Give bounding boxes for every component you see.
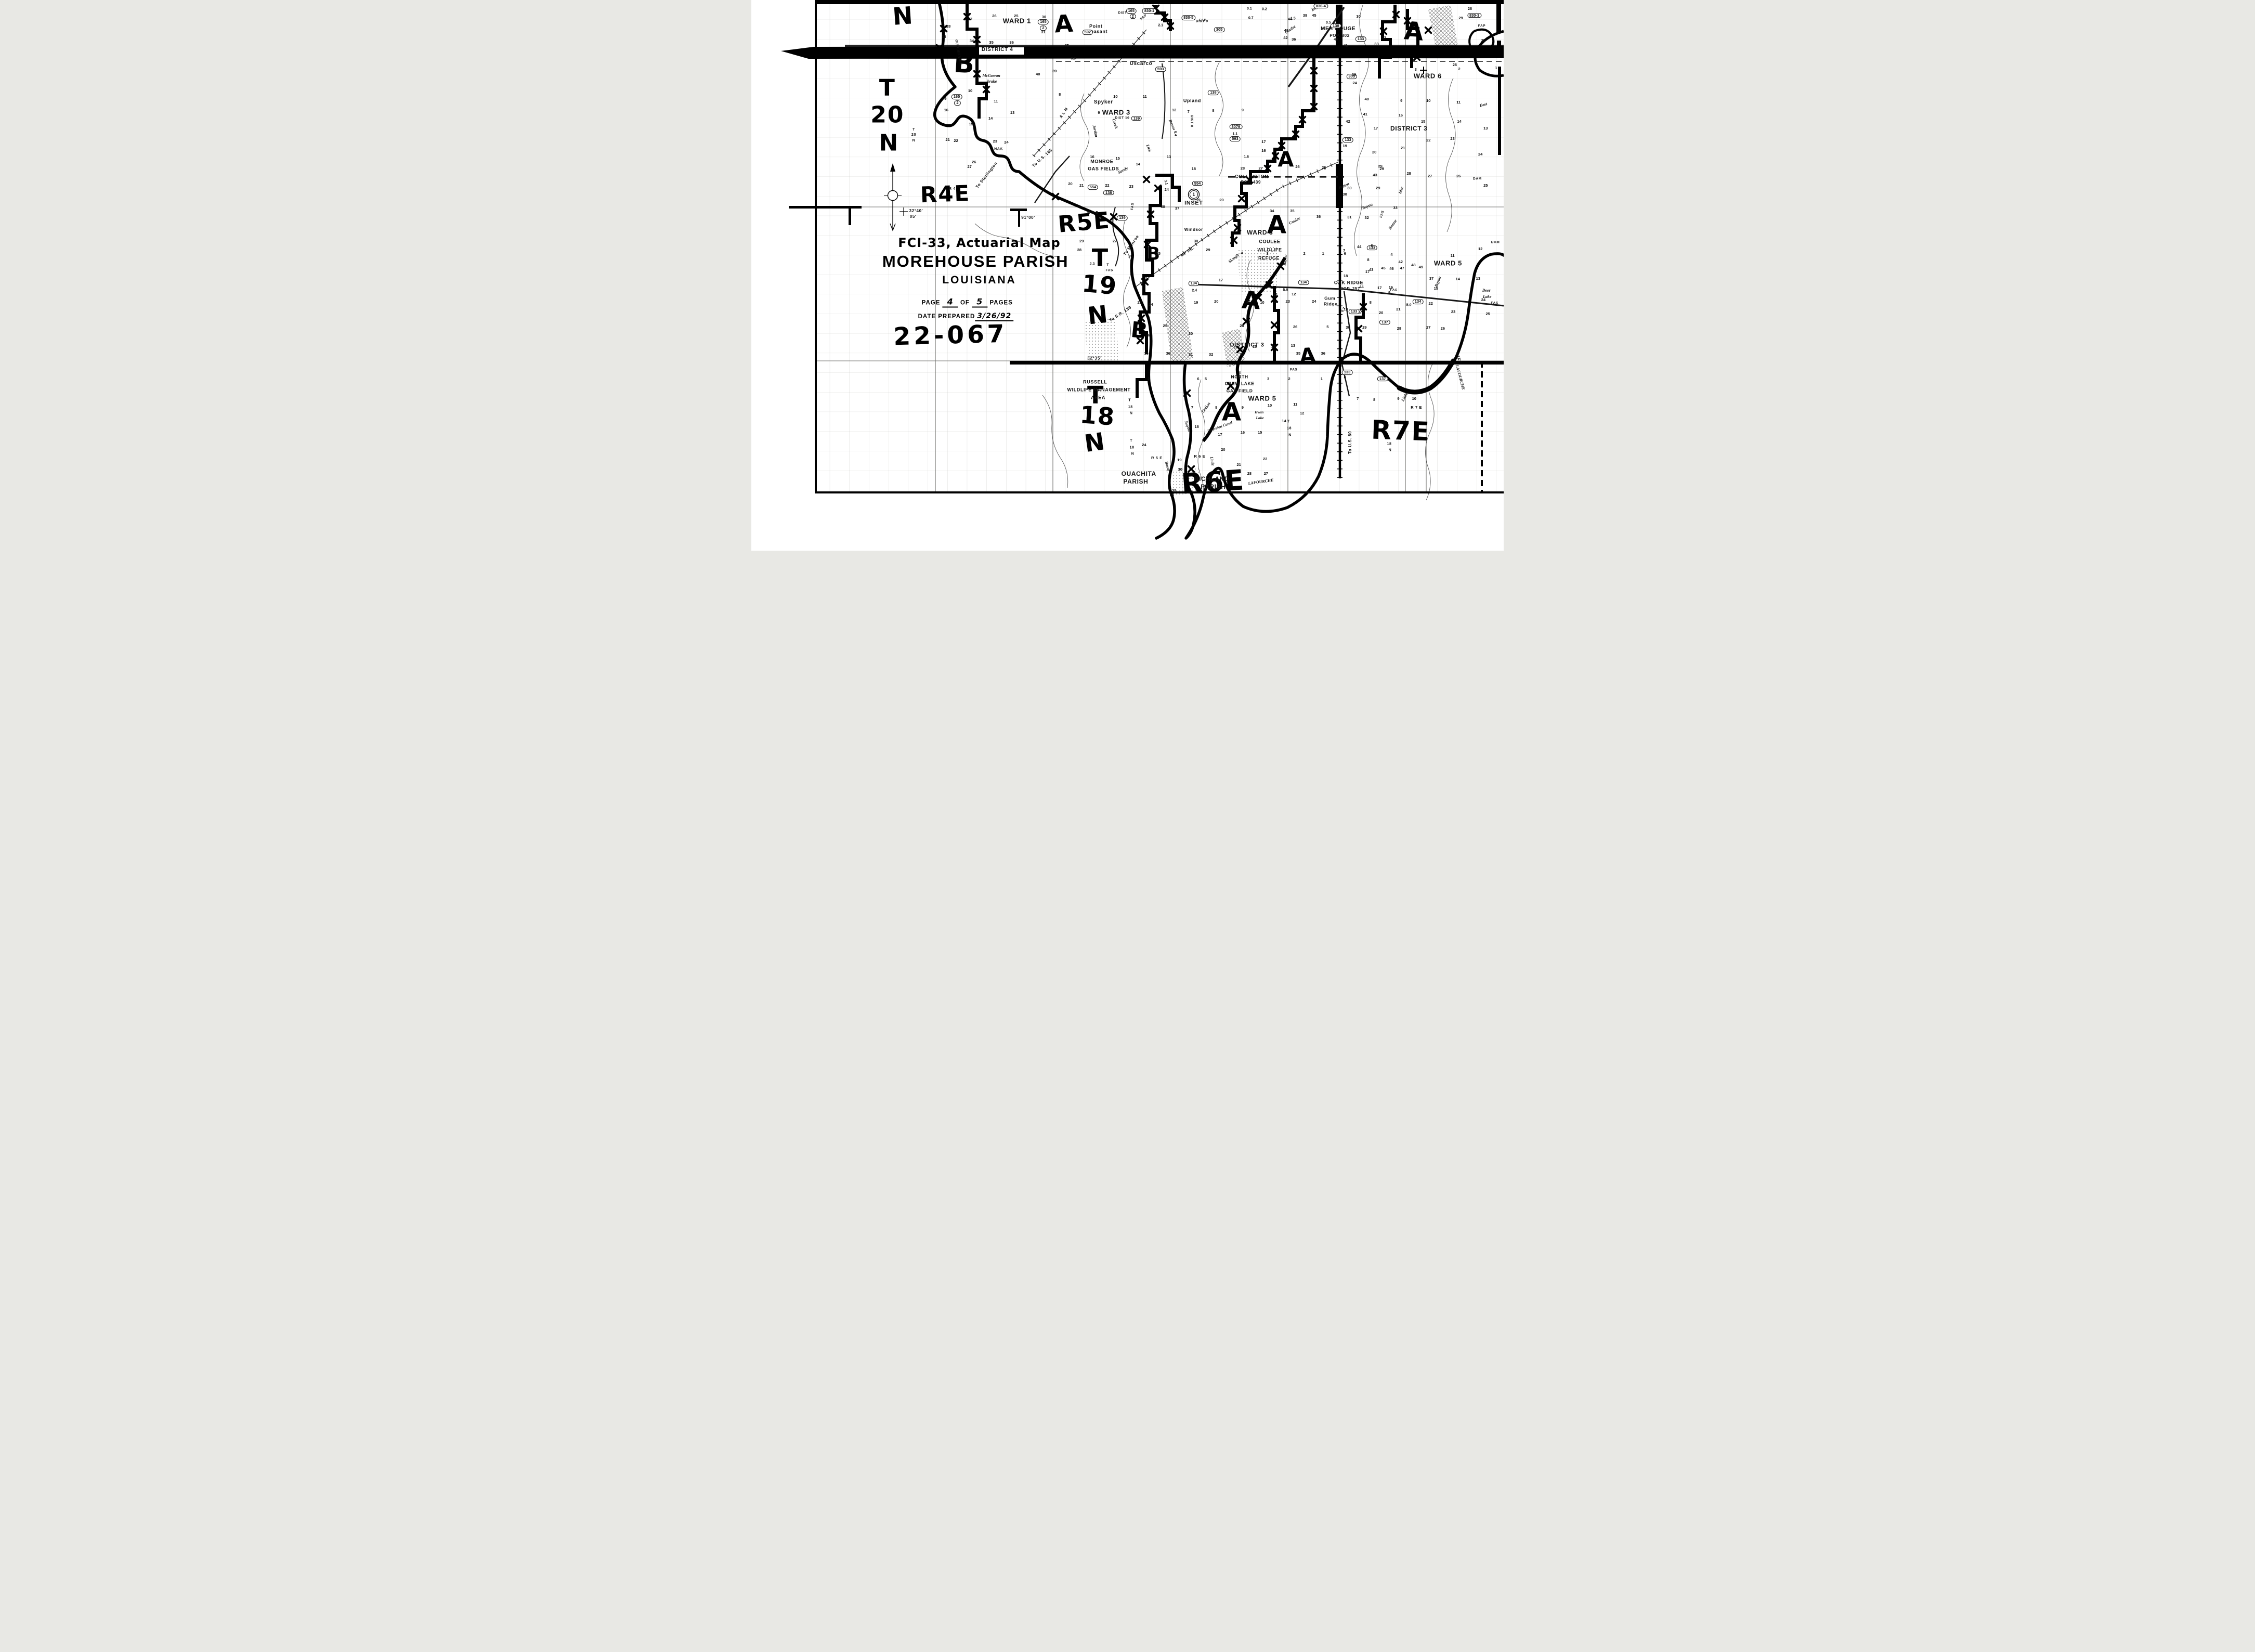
township-19n: N bbox=[1086, 302, 1110, 328]
map-label-print: REFUGE bbox=[1258, 256, 1280, 261]
map-label-num: 12 bbox=[1292, 292, 1296, 296]
map-label-num: 2 bbox=[1303, 252, 1305, 256]
map-label-num: 12 bbox=[1172, 108, 1176, 112]
zone-a-letter: A bbox=[1403, 19, 1425, 46]
map-label-num: 7 bbox=[1357, 397, 1359, 401]
map-label-print: DAM bbox=[1473, 178, 1482, 181]
map-label-ital: Boeuf bbox=[1164, 461, 1171, 472]
map-label-print: DIST 10 bbox=[1115, 116, 1129, 120]
map-label-shield: 138 bbox=[1331, 23, 1341, 29]
map-label-shield: 165 bbox=[951, 95, 962, 100]
town-upland: Upland bbox=[1183, 98, 1201, 103]
map-label-num: 14 bbox=[1456, 277, 1460, 281]
map-label-print: POP. 802 bbox=[1329, 34, 1349, 38]
map-label-shield: 830-3 bbox=[1467, 13, 1481, 18]
map-label-num: 26 bbox=[1441, 327, 1445, 331]
map-label-num: 28 bbox=[1397, 327, 1401, 331]
ward-5-label: WARD 5 bbox=[1248, 395, 1276, 401]
map-label-shield: 593 bbox=[1230, 136, 1241, 141]
map-label-num: 36 bbox=[1170, 493, 1174, 497]
map-label-shield: 133 bbox=[1349, 309, 1360, 315]
map-label-num: 43 bbox=[1373, 173, 1377, 177]
map-label-num: 31 bbox=[1347, 215, 1351, 219]
map-label-num: 19 bbox=[1343, 144, 1347, 148]
map-label-ital: Galion bbox=[1202, 401, 1212, 413]
map-label-num: 45 bbox=[1381, 266, 1385, 270]
township-20n: N bbox=[879, 132, 899, 155]
map-label-num: 23 bbox=[1450, 137, 1454, 141]
township-20n: 20 bbox=[870, 104, 904, 127]
map-label-ital: Bayou bbox=[1168, 119, 1176, 131]
map-label-num: 24 bbox=[1149, 303, 1153, 307]
map-label-num: 30 bbox=[1194, 239, 1198, 243]
map-label-num: 28 bbox=[946, 24, 950, 29]
map-label-num: 27 bbox=[968, 17, 972, 21]
date-line: DATE PREPARED3/26/92 bbox=[918, 312, 1014, 320]
map-label-num: 15 bbox=[1421, 120, 1425, 124]
district-4-label: DISTRICT 4 bbox=[982, 47, 1013, 53]
town-collinston: COLLINSTON bbox=[1235, 174, 1268, 179]
map-label-num: 28 bbox=[1468, 7, 1472, 11]
map-label-print: 18 bbox=[1387, 442, 1392, 446]
zone-a-letter: A bbox=[1299, 345, 1318, 368]
map-label-shield: 554 bbox=[1088, 185, 1099, 190]
map-label-print: FAS bbox=[1359, 307, 1366, 316]
map-label-num: 5 bbox=[1205, 377, 1207, 381]
map-label-num: 33 bbox=[1393, 206, 1397, 210]
map-label-print: N bbox=[1288, 433, 1292, 437]
map-label-num: 16 bbox=[1261, 149, 1266, 153]
map-label-num: 10 bbox=[968, 89, 972, 93]
map-label-num: 19 bbox=[1196, 199, 1200, 203]
map-label-num: 43 bbox=[1369, 268, 1373, 272]
map-label-shield: 830-4 bbox=[1314, 4, 1328, 9]
map-label-shield: 133 bbox=[1342, 370, 1353, 375]
map-label-num: 19 bbox=[1194, 301, 1198, 305]
map-label-num: 22 bbox=[1426, 138, 1430, 142]
map-label-num: 41 bbox=[1344, 44, 1348, 48]
map-label-num: 27 bbox=[1426, 326, 1430, 330]
zone-a-letter: A bbox=[1054, 11, 1075, 36]
map-label-num: 2 bbox=[1148, 377, 1150, 381]
map-label-num: 43 bbox=[1284, 29, 1288, 33]
map-label-ital: Diversion Canal bbox=[1207, 420, 1233, 433]
map-label-num: 15 bbox=[1258, 431, 1262, 435]
map-label-num: 4 bbox=[1390, 253, 1392, 257]
map-label-print: 18 bbox=[1130, 446, 1135, 449]
map-label-num: 29 bbox=[1376, 186, 1380, 190]
map-label-num: 40 bbox=[1364, 97, 1368, 101]
map-label-print: T bbox=[913, 127, 915, 132]
state-name: LOUISIANA bbox=[942, 274, 1016, 287]
map-label-num: 1.6 bbox=[1244, 155, 1249, 159]
map-label-num: 11 bbox=[1293, 403, 1297, 407]
map-label-num: 7 bbox=[1188, 110, 1190, 114]
map-label-num: 37 bbox=[1175, 207, 1179, 211]
map-label-num: 16 bbox=[1389, 285, 1393, 290]
map-label-num: 2 bbox=[1288, 377, 1291, 381]
map-label-num: 9 bbox=[1400, 99, 1402, 103]
mp-railroad-label: MP RR. bbox=[1180, 246, 1195, 258]
map-label-num: 17 bbox=[1377, 286, 1381, 290]
map-label-num: 6.0 bbox=[1071, 57, 1076, 61]
map-label-shield: 139 bbox=[1117, 216, 1128, 221]
north-letter: N bbox=[892, 3, 915, 29]
map-label-shield: 2 bbox=[1130, 14, 1136, 19]
map-label-num: 25 bbox=[1481, 39, 1485, 43]
range-4e: R4E bbox=[920, 183, 971, 206]
map-label-num: 27 bbox=[1264, 472, 1268, 476]
map-label-shield: 139 bbox=[1131, 116, 1142, 121]
map-label-num: 23 bbox=[1451, 310, 1455, 315]
map-title: FCI-33, Actuarial Map bbox=[898, 236, 1060, 250]
map-label-num: 16 bbox=[1234, 345, 1238, 349]
map-label-num: 22 bbox=[954, 139, 958, 143]
map-label-num: 2.4 bbox=[1192, 289, 1197, 293]
map-label-num: 35 bbox=[1144, 352, 1149, 356]
richland-parish: RICHLAND bbox=[1194, 476, 1229, 482]
map-label-ital: Deer bbox=[1482, 289, 1491, 293]
map-label-num: 29 bbox=[1378, 164, 1383, 168]
map-label-num: 17 bbox=[1219, 278, 1223, 282]
map-label-num: 20 bbox=[1379, 311, 1383, 315]
ward-1-label: WARD 1 bbox=[1003, 18, 1031, 24]
russell-wma: RUSSELL bbox=[1083, 380, 1107, 384]
map-label-num: 5.4 bbox=[1172, 131, 1177, 137]
map-label-num: 22 bbox=[1273, 301, 1278, 305]
map-label-num: 26 bbox=[1145, 333, 1150, 337]
map-label-print: GAS FIELD bbox=[1227, 389, 1253, 394]
map-label-print: PARISH bbox=[1123, 478, 1148, 484]
map-label-num: 30 bbox=[1357, 15, 1361, 19]
pages-label: PAGES bbox=[989, 300, 1012, 306]
map-label-shield: 137 bbox=[1377, 376, 1388, 382]
map-label-num: 21 bbox=[1236, 463, 1241, 467]
map-label-num: 14 bbox=[988, 116, 993, 121]
map-label-num: 45 bbox=[1312, 14, 1316, 18]
map-label-num: 24 bbox=[1481, 298, 1485, 302]
map-label-num: 24 bbox=[1478, 152, 1482, 157]
map-label-print: POP. 439 bbox=[1241, 180, 1261, 184]
map-label-num: 32 bbox=[1382, 36, 1386, 40]
map-label-num: 9 bbox=[1397, 397, 1399, 401]
map-label-ital: brake bbox=[987, 80, 997, 84]
map-label-ital: Bayou bbox=[1283, 254, 1288, 266]
map-label-num: 36 bbox=[1292, 37, 1296, 42]
page-label: PAGE bbox=[922, 300, 941, 306]
map-label-print: WILDLIFE MANAGEMENT bbox=[1067, 387, 1131, 392]
map-label-num: 13 bbox=[1483, 126, 1488, 131]
map-label-shield: 134 bbox=[1298, 280, 1309, 285]
map-label-num: 16 bbox=[1241, 431, 1245, 435]
map-label-num: 8 bbox=[1215, 406, 1217, 410]
map-label-num: 11 bbox=[994, 99, 998, 103]
map-label-num: 26 bbox=[1128, 255, 1132, 259]
map-label-num: 8 bbox=[1059, 93, 1061, 97]
map-label-print: N bbox=[1131, 452, 1135, 456]
ward-8-label: WARD 8 bbox=[1247, 229, 1273, 236]
map-label-num: 15 bbox=[1116, 157, 1120, 161]
map-label-num: 37 bbox=[1429, 277, 1433, 281]
map-label-num: 23 bbox=[993, 139, 997, 144]
map-label-num: 35 bbox=[1296, 352, 1300, 356]
map-label-num: 24 bbox=[1165, 188, 1169, 192]
map-label-shield: 134 bbox=[1413, 300, 1424, 305]
map-label-shield: 165 bbox=[1038, 20, 1049, 25]
town-windsor: Windsor bbox=[1184, 228, 1203, 232]
map-label-shield: 305 bbox=[1214, 27, 1225, 32]
map-label-num: 3 bbox=[1415, 68, 1417, 72]
map-label-num: 10 bbox=[1260, 301, 1264, 305]
map-label-num: 24 bbox=[1142, 443, 1146, 447]
map-label-num: 27 bbox=[1113, 239, 1117, 243]
map-label-num: 20 bbox=[1068, 182, 1072, 186]
map-label-print: AREA bbox=[1091, 395, 1105, 400]
map-label-shield: 592 bbox=[1083, 30, 1093, 35]
map-label-num: 31 bbox=[1041, 31, 1045, 35]
district-3-label: DISTRICT 3 bbox=[1390, 125, 1427, 132]
map-label-num: 30 bbox=[1346, 326, 1350, 330]
map-label-num: 10 bbox=[1412, 397, 1416, 401]
map-label-num: 22 bbox=[1105, 184, 1109, 188]
map-label-num: 46 bbox=[1389, 267, 1393, 271]
map-label-print: To Monroe bbox=[1123, 235, 1140, 256]
map-label-print: R 5 E bbox=[1151, 456, 1163, 460]
map-label-shield: 165 bbox=[1126, 8, 1137, 14]
map-label-ital: Slough bbox=[1228, 253, 1240, 264]
map-label-print: N bbox=[913, 138, 916, 142]
map-label-print: CREW LAKE bbox=[1225, 382, 1255, 386]
map-label-print: Ridge bbox=[1324, 302, 1338, 306]
map-label-num: 2.3 bbox=[1090, 263, 1095, 266]
map-label-num: 34 bbox=[1270, 209, 1274, 213]
map-label-print: 05' bbox=[910, 215, 917, 219]
map-label-num: 8 bbox=[1373, 398, 1375, 402]
map-label-print: R 7 E bbox=[1411, 406, 1422, 410]
map-label-print: DAM bbox=[1491, 241, 1500, 245]
map-label-num: 23 bbox=[1137, 301, 1141, 305]
range-7e: R7E bbox=[1371, 417, 1430, 446]
map-label-num: 23 bbox=[1129, 185, 1133, 189]
map-label-num: 13 bbox=[1291, 344, 1295, 348]
map-label-num: 22 bbox=[1428, 302, 1432, 306]
map-label-num: 12 bbox=[1478, 247, 1482, 251]
map-label-num: 28 bbox=[1077, 248, 1081, 252]
map-label-num: 39 bbox=[1052, 69, 1057, 73]
map-label-num: 8 bbox=[1367, 258, 1369, 262]
map-label-print: To S.R. 139 bbox=[1109, 305, 1133, 323]
map-label-num: 7 bbox=[1343, 249, 1345, 253]
map-label-num: 7 bbox=[1191, 406, 1193, 410]
range-5e: R5E bbox=[1057, 209, 1111, 237]
map-label-num: 13 bbox=[1167, 155, 1171, 159]
map-label-ital: Bayou bbox=[1362, 202, 1374, 211]
map-label-num: 33 bbox=[942, 35, 946, 39]
map-label-print: R 5 E bbox=[1087, 211, 1099, 215]
township-19n: 19 bbox=[1081, 271, 1118, 298]
lat-32-40: 32°40' bbox=[909, 209, 923, 213]
map-label-ital: LAKE bbox=[1455, 352, 1462, 363]
map-label-num: 13 bbox=[1476, 277, 1480, 281]
map-label-print: DIST 8 bbox=[1190, 115, 1193, 127]
map-label-num: 22 bbox=[1263, 457, 1267, 461]
map-label-num: 28 bbox=[1247, 472, 1252, 476]
map-label-num: 5 bbox=[1371, 244, 1373, 249]
map-label-num: 9 bbox=[1242, 108, 1244, 112]
map-label-num: 29 bbox=[1079, 239, 1084, 243]
map-label-num: 29 bbox=[1206, 248, 1210, 252]
map-label-num: 33 bbox=[1374, 42, 1378, 46]
map-label-num: 35 bbox=[989, 41, 993, 45]
map-label-print: FAS bbox=[1290, 368, 1297, 372]
map-label-num: 9 bbox=[1388, 291, 1390, 295]
map-label-num: 25 bbox=[1163, 324, 1167, 328]
map-label-num: 10 bbox=[1268, 404, 1272, 408]
map-label-num: 2 bbox=[1458, 68, 1461, 72]
map-label-num: 41 bbox=[1363, 112, 1367, 116]
map-label-print: 20 bbox=[911, 133, 917, 137]
map-label-num: 40 bbox=[1036, 72, 1040, 76]
map-label-num: 24 bbox=[1004, 140, 1008, 145]
map-label-num: 32 bbox=[1364, 216, 1368, 220]
map-label-print: FAS bbox=[1131, 203, 1135, 211]
map-label-num: 36 bbox=[1316, 215, 1321, 219]
map-label-num: 15 bbox=[969, 123, 973, 127]
map-label-num: 30 bbox=[1343, 192, 1347, 197]
map-label-shield: 134 bbox=[1189, 281, 1200, 287]
map-label-num: 28 bbox=[1241, 166, 1245, 171]
zone-a-letter: A bbox=[1241, 288, 1262, 314]
map-label-num: 32 bbox=[1209, 353, 1213, 357]
map-label-num: 1.1 bbox=[1233, 133, 1238, 136]
map-label-num: 28 bbox=[1240, 324, 1244, 328]
map-label-num: 47 bbox=[1064, 44, 1068, 48]
map-label-print: PARISH bbox=[1201, 484, 1226, 490]
map-label-num: 30 bbox=[1042, 15, 1046, 19]
map-label-num: 10 bbox=[1113, 95, 1117, 99]
map-label-num: 39 bbox=[1352, 73, 1356, 77]
map-label-num: 33 bbox=[1240, 353, 1244, 357]
map-label-num: 2.1 bbox=[1158, 23, 1163, 27]
map-label-num: 0.2 bbox=[1262, 7, 1267, 11]
map-label-num: 5.0 bbox=[1406, 303, 1412, 307]
map-label-print: FAP bbox=[1199, 19, 1206, 23]
map-label-num: 21 bbox=[1401, 146, 1405, 150]
map-label-num: 4 bbox=[1239, 371, 1241, 375]
map-label-num: 21 bbox=[1079, 184, 1084, 188]
pages-total: 5 bbox=[972, 297, 987, 308]
map-label-num: 29 bbox=[1458, 16, 1463, 20]
map-label-num: 14 bbox=[1136, 162, 1140, 166]
map-label-ital: Idee bbox=[1398, 186, 1404, 194]
map-label-num: 8 bbox=[1370, 301, 1372, 305]
map-label-ital: Little bbox=[1209, 457, 1215, 466]
alm-railroad-label: A L M bbox=[1059, 107, 1068, 119]
map-label-ital: Irwin bbox=[1255, 410, 1263, 414]
map-label-num: 25 bbox=[1483, 184, 1488, 188]
map-label-print: To U.S. 165 bbox=[1032, 148, 1053, 168]
map-label-num: 10 bbox=[1426, 99, 1430, 103]
map-label-num: 4 bbox=[1241, 251, 1243, 255]
map-label-num: 24 bbox=[1352, 81, 1357, 85]
map-label-print: FAS bbox=[1491, 302, 1498, 305]
township-18n: 18 bbox=[1079, 402, 1116, 430]
map-label-ital: Little bbox=[1401, 392, 1410, 402]
map-label-num: 12 bbox=[1300, 411, 1304, 415]
map-label-print: To U.S. 80 bbox=[1348, 431, 1352, 454]
map-label-num: 14 bbox=[1271, 345, 1275, 349]
map-label-print: R 4 bbox=[949, 187, 956, 191]
ouachita-parish: OUACHITA bbox=[1122, 471, 1156, 477]
map-label-num: 9 bbox=[944, 97, 946, 101]
map-label-shield: 3079 bbox=[1230, 124, 1243, 129]
doc-number: 22-067 bbox=[893, 320, 1008, 352]
map-label-num: 6 bbox=[1344, 376, 1346, 380]
map-label-num: 28 bbox=[1407, 172, 1411, 176]
map-label-num: 19 bbox=[1177, 458, 1181, 462]
map-label-num: 34 bbox=[970, 40, 974, 44]
map-label-num: 6 bbox=[1197, 377, 1199, 381]
map-label-print: FAP bbox=[1140, 14, 1148, 21]
map-label-shield: 133 bbox=[1342, 137, 1353, 142]
map-label-num: 21 bbox=[1246, 300, 1250, 304]
map-label-num: 26 bbox=[1293, 325, 1297, 329]
map-label-num: 36 bbox=[1166, 352, 1170, 356]
map-label-num: 16 bbox=[944, 108, 948, 112]
parish-name: MOREHOUSE PARISH bbox=[882, 252, 1069, 271]
date-label: DATE PREPARED bbox=[918, 314, 975, 320]
map-label-num: 17 bbox=[1365, 270, 1370, 274]
map-label-print: 18 bbox=[1128, 405, 1133, 409]
coulee-wildlife-refuge: COULEE bbox=[1259, 239, 1280, 244]
map-label-num: 20 bbox=[1214, 300, 1218, 304]
map-label-num: 30 bbox=[1178, 467, 1182, 472]
actuarial-map-page: NBT20NR4ER5ET19NBBAAAAAAAT18NR6ER7EWARD … bbox=[751, 0, 1504, 551]
map-label-num: 26 bbox=[1456, 174, 1461, 178]
map-label-num: 40 bbox=[1334, 37, 1338, 42]
map-label-num: 1 bbox=[1321, 377, 1323, 381]
map-label-num: 44 bbox=[1357, 245, 1361, 250]
map-label-num: 47 bbox=[1400, 266, 1404, 270]
map-label-num: 20 bbox=[1372, 151, 1376, 155]
map-label-num: 14 bbox=[1457, 120, 1461, 124]
map-label-num: 8 bbox=[1212, 109, 1214, 113]
map-label-ital: Bonne bbox=[1388, 219, 1398, 231]
map-label-num: 19 bbox=[1344, 307, 1348, 311]
map-label-num: 14 bbox=[1282, 419, 1286, 423]
town-gum-ridge: Gum bbox=[1324, 296, 1335, 301]
town-uscarco: Uscarco bbox=[1130, 61, 1153, 67]
map-label-num: 26 bbox=[1295, 165, 1299, 169]
lat-32-35: 32°35' bbox=[1087, 356, 1102, 361]
map-label-print: FAS bbox=[1106, 269, 1113, 273]
map-label-num: 26 bbox=[992, 14, 996, 18]
monroe-gas-fields: MONROE bbox=[1090, 160, 1113, 164]
map-label-shield: 138 bbox=[1103, 190, 1114, 196]
map-label-print: N bbox=[1389, 449, 1392, 452]
map-label-num: 25 bbox=[1014, 14, 1018, 18]
ward-3-label: WARD 3 bbox=[1102, 109, 1130, 115]
map-label-ital: McGowan bbox=[982, 74, 1000, 78]
map-label-num: 21 bbox=[1396, 307, 1400, 311]
map-label-print: N bbox=[1130, 412, 1133, 415]
map-label-num: 42 bbox=[1399, 260, 1403, 264]
map-label-num: 9 bbox=[1098, 111, 1100, 115]
map-label-num: 18 bbox=[1344, 274, 1348, 278]
map-label-print: WILDLIFE bbox=[1257, 248, 1282, 252]
map-label-ital: LAFOURCHE bbox=[1455, 365, 1466, 391]
map-label-print: 18 bbox=[1287, 426, 1292, 430]
